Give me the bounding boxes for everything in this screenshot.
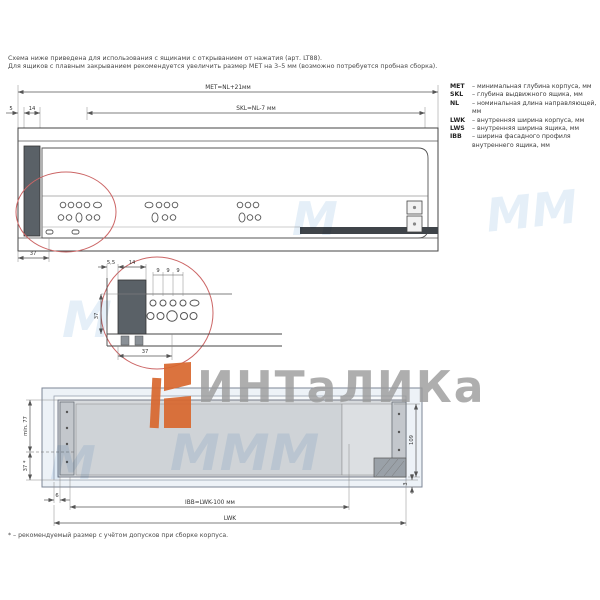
note-line-1: Схема ниже приведена для использования с… (8, 55, 448, 63)
legend-key: NL (450, 100, 472, 117)
legend-row: IBB – ширина фасадного профиля внутренне… (450, 133, 598, 150)
dim-right-height: 109 (409, 435, 415, 445)
dim-skl: SKL=NL-7 мм (236, 106, 275, 112)
dim-front-gap: 5 (9, 106, 12, 112)
legend-key: SKL (450, 91, 472, 99)
detail-view: 9 9 9 5,5 14 37 37 (94, 257, 282, 369)
footnote: * – рекомендуемый размер с учётом допуск… (8, 532, 228, 539)
dim-offset-detail: 37 (142, 349, 149, 355)
dim-side-gap: 6 (55, 493, 58, 499)
legend-desc: – номинальная длина направляющей, мм (472, 100, 598, 117)
dim-bottom-gap: 3 (403, 482, 409, 485)
brand-logo-icon (148, 360, 194, 430)
fascia-profile-detail (118, 280, 146, 334)
logo-body-shape (164, 396, 191, 428)
dim-profile-detail: 14 (129, 260, 136, 266)
fascia-profile (24, 146, 40, 236)
dim-pitch: 9 (156, 268, 159, 274)
watermark-tint: М (50, 440, 96, 486)
rear-bracket (407, 201, 422, 232)
brand-watermark: ИНТаЛИКа (197, 366, 485, 410)
watermark-tint: МММ (170, 428, 319, 478)
note-line-2: Для ящиков с плавным закрыванием рекомен… (8, 63, 448, 71)
legend-key: IBB (450, 133, 472, 150)
dim-profile-width: 14 (29, 106, 36, 112)
legend-desc: – внутренняя ширина корпуса, мм (472, 117, 598, 125)
rail-block (374, 458, 406, 477)
dim-lwk: LWK (224, 516, 236, 522)
legend-desc: – глубина выдвижного ящика, мм (472, 91, 598, 99)
legend-key: LWK (450, 117, 472, 125)
catalog-page: ММ М МММ М М Схема ниже приведена для ис… (0, 0, 600, 600)
legend-key: MET (450, 83, 472, 91)
dim-first-hole: 37 (30, 251, 37, 257)
watermark-tint: М (62, 295, 112, 345)
dim-ibb: IBB=LWK-100 мм (185, 500, 235, 506)
logo-bar-shape (150, 378, 162, 428)
legend-row: NL – номинальная длина направляющей, мм (450, 100, 598, 117)
dim-gap-detail: 5,5 (107, 260, 115, 266)
header-note: Схема ниже приведена для использования с… (8, 55, 448, 71)
legend-row: LWK – внутренняя ширина корпуса, мм (450, 117, 598, 125)
dim-met: MET=NL+21мм (205, 85, 251, 91)
logo-flag-shape (164, 362, 191, 393)
dim-pitch: 9 (176, 268, 179, 274)
legend-key: LWS (450, 125, 472, 133)
watermark-tint: ММ (484, 183, 580, 238)
dim-pitch: 9 (166, 268, 169, 274)
watermark-tint: М (292, 196, 338, 242)
plan-view: MET=NL+21мм SKL=NL-7 мм 5 14 (6, 85, 438, 262)
legend-desc: – ширина фасадного профиля внутреннего я… (472, 133, 598, 150)
legend-desc: – внутренняя ширина ящика, мм (472, 125, 598, 133)
abbreviation-legend: MET – минимальная глубина корпуса, мм SK… (450, 83, 598, 150)
dim-rail-height: 37 * (23, 460, 29, 471)
legend-row: LWS – внутренняя ширина ящика, мм (450, 125, 598, 133)
legend-row: SKL – глубина выдвижного ящика, мм (450, 91, 598, 99)
dim-min-height: min. 77 (23, 416, 29, 436)
drawer-side-member (42, 148, 428, 238)
